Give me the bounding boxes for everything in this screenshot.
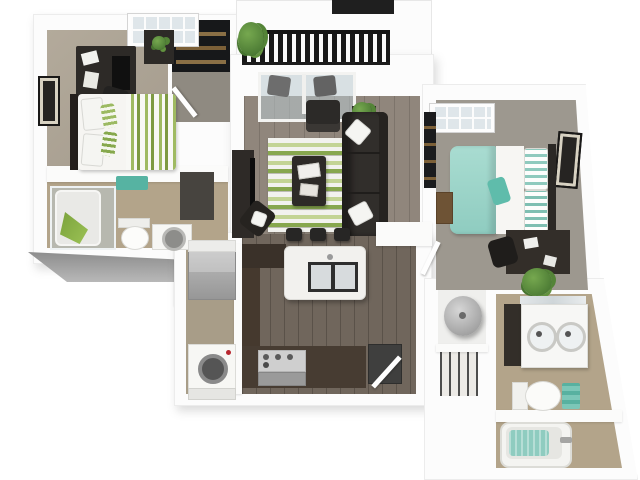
- glass-door-curtain: [267, 75, 292, 98]
- range-burner: [287, 354, 293, 360]
- dryer-counter: [188, 388, 236, 400]
- sofa-seam: [346, 192, 380, 194]
- bedroom2-wall-art: [554, 131, 583, 189]
- armchair: [306, 100, 340, 132]
- range-burner: [275, 354, 281, 360]
- bathtub-teal-mat: [509, 430, 549, 456]
- bathroom1-dark-cabinet: [180, 172, 214, 220]
- nightstand-plant: [152, 36, 166, 50]
- bathroom1-sink-basin: [162, 227, 186, 251]
- upper-cabinet: [188, 240, 236, 252]
- teal-towel-stack: [562, 383, 580, 409]
- vanity2-sink-basin: [556, 322, 586, 352]
- glass-door-curtain: [313, 75, 337, 97]
- kitchen-corner-counter: [242, 244, 286, 268]
- upper-railing-segment: [332, 0, 394, 14]
- kitchen-left-counter: [242, 268, 260, 346]
- bathroom2-tub-divider-wall: [496, 410, 622, 422]
- washer-indicator: [226, 350, 231, 355]
- teal-bath-mat: [116, 176, 148, 190]
- island-sink-left-basin: [308, 262, 334, 292]
- range-burner: [263, 362, 269, 368]
- washer-door: [198, 354, 228, 384]
- bedroom1-desk-tv: [112, 56, 130, 90]
- bedroom1-bed-headboard: [70, 94, 78, 170]
- coffee-table-books: [299, 183, 318, 197]
- bedroom2-floor-plant: [522, 268, 552, 296]
- vanity2-sink-drain: [536, 331, 542, 337]
- range-oven-front: [258, 372, 306, 386]
- sofa-seam: [346, 152, 380, 154]
- closet-divider-wall: [436, 344, 488, 352]
- vanity2-dark-cabinet: [504, 304, 521, 366]
- bedroom2-window: [430, 104, 494, 132]
- wire-shelf-closet: [440, 352, 478, 396]
- range-burner: [263, 354, 269, 360]
- bar-stool: [310, 228, 326, 241]
- bed2-striped-pillow: [524, 148, 548, 190]
- refrigerator: [188, 250, 236, 300]
- bed2-striped-pillow: [524, 190, 548, 232]
- entry-closet-shelf: [176, 46, 226, 50]
- bar-stool: [286, 228, 302, 241]
- bathroom2-toilet-bowl: [525, 381, 561, 411]
- floor-plan-render: [0, 0, 640, 480]
- balcony-plant: [238, 22, 264, 56]
- vanity2-sink-basin: [527, 322, 557, 352]
- bathtub-faucet: [560, 437, 572, 443]
- bathroom1-toilet-bowl: [121, 226, 149, 250]
- bedroom1-wall-art: [38, 76, 60, 126]
- island-sink-right-basin: [332, 262, 358, 292]
- water-heater-valve: [459, 312, 466, 319]
- bed1-striped-duvet: [126, 94, 176, 170]
- bar-stool: [334, 228, 350, 241]
- bedroom2-bench: [436, 192, 453, 224]
- bed2-headboard: [548, 144, 556, 236]
- island-faucet: [327, 254, 333, 260]
- entry-closet-shelf: [176, 60, 226, 64]
- living-kitchen-wall-stub: [376, 222, 432, 246]
- bedroom2-closet-shelves: [424, 112, 436, 188]
- balcony-railing: [242, 30, 390, 65]
- desk-papers: [83, 71, 99, 89]
- vanity2-sink-drain: [565, 331, 571, 337]
